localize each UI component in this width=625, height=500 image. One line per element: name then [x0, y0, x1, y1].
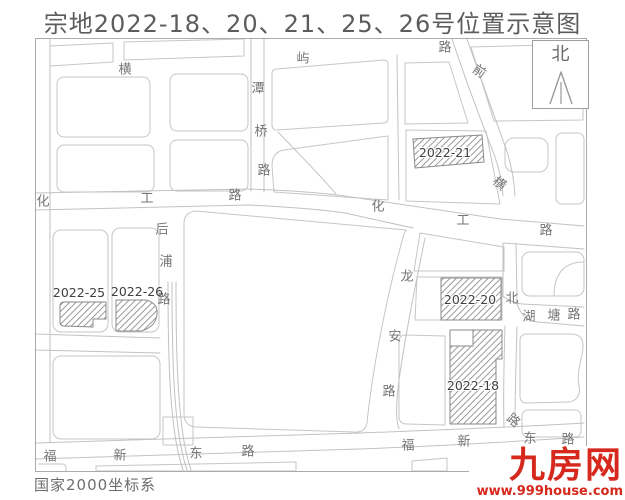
parcel-label: 2022-25	[53, 287, 105, 300]
road-label-char: 路	[382, 386, 395, 399]
road-label-char: 工	[456, 215, 469, 228]
road-label-char: 路	[257, 165, 270, 178]
watermark-logo: 九房网 www.999house.com	[469, 446, 625, 499]
road-label-char: 东	[523, 433, 536, 446]
road-label-char: 塘	[547, 310, 560, 323]
parcel-label: 2022-26	[111, 286, 163, 299]
road-label-char: 屿	[296, 53, 309, 66]
north-indicator: 北	[532, 40, 589, 109]
road-label-char: 化	[371, 201, 384, 214]
parcel-2022-18-notch	[450, 330, 473, 346]
road-label-char: 湖	[522, 311, 535, 324]
road-label-char: 安	[388, 331, 401, 344]
road-label-char: 桥	[254, 126, 267, 139]
road-label-char: 化	[36, 196, 49, 209]
blocks-layer	[38, 39, 584, 471]
parcel-2022-26-shape	[116, 300, 157, 331]
parcel-2022-25-shape	[60, 302, 106, 327]
road-label-char: 浦	[159, 256, 172, 269]
road-label-char: 路	[228, 190, 241, 203]
parcel-label: 2022-21	[419, 147, 471, 160]
road-label-char: 路	[539, 225, 552, 238]
road-label-char: 新	[113, 450, 126, 463]
road-label-char: 工	[140, 193, 153, 206]
north-label: 北	[533, 44, 588, 66]
road-label-char: 福	[401, 440, 414, 453]
road-label-char: 福	[43, 451, 56, 464]
road-label-char: 潭	[251, 83, 264, 96]
road-label-char: 东	[189, 448, 202, 461]
watermark-name: 九房网	[477, 448, 623, 484]
parcel-label: 2022-18	[447, 380, 499, 393]
north-arrow-icon	[533, 66, 588, 106]
coordinate-system-note: 国家2000坐标系	[34, 474, 156, 495]
road-label-char: 路	[567, 309, 580, 322]
roads-layer	[35, 38, 584, 470]
map-figure: 宗地2022-18、20、21、25、26号位置示意图	[0, 0, 625, 500]
road-label-char: 路	[438, 42, 451, 55]
road-label-char: 北	[505, 293, 518, 306]
road-label-char: 路	[241, 446, 254, 459]
road-label-char: 后	[155, 224, 168, 237]
parcels-layer	[60, 135, 502, 424]
watermark-url: www.999house.com	[477, 485, 623, 498]
road-label-char: 龙	[400, 271, 413, 284]
parcel-label: 2022-20	[444, 294, 496, 307]
road-label-char: 横	[118, 64, 131, 77]
